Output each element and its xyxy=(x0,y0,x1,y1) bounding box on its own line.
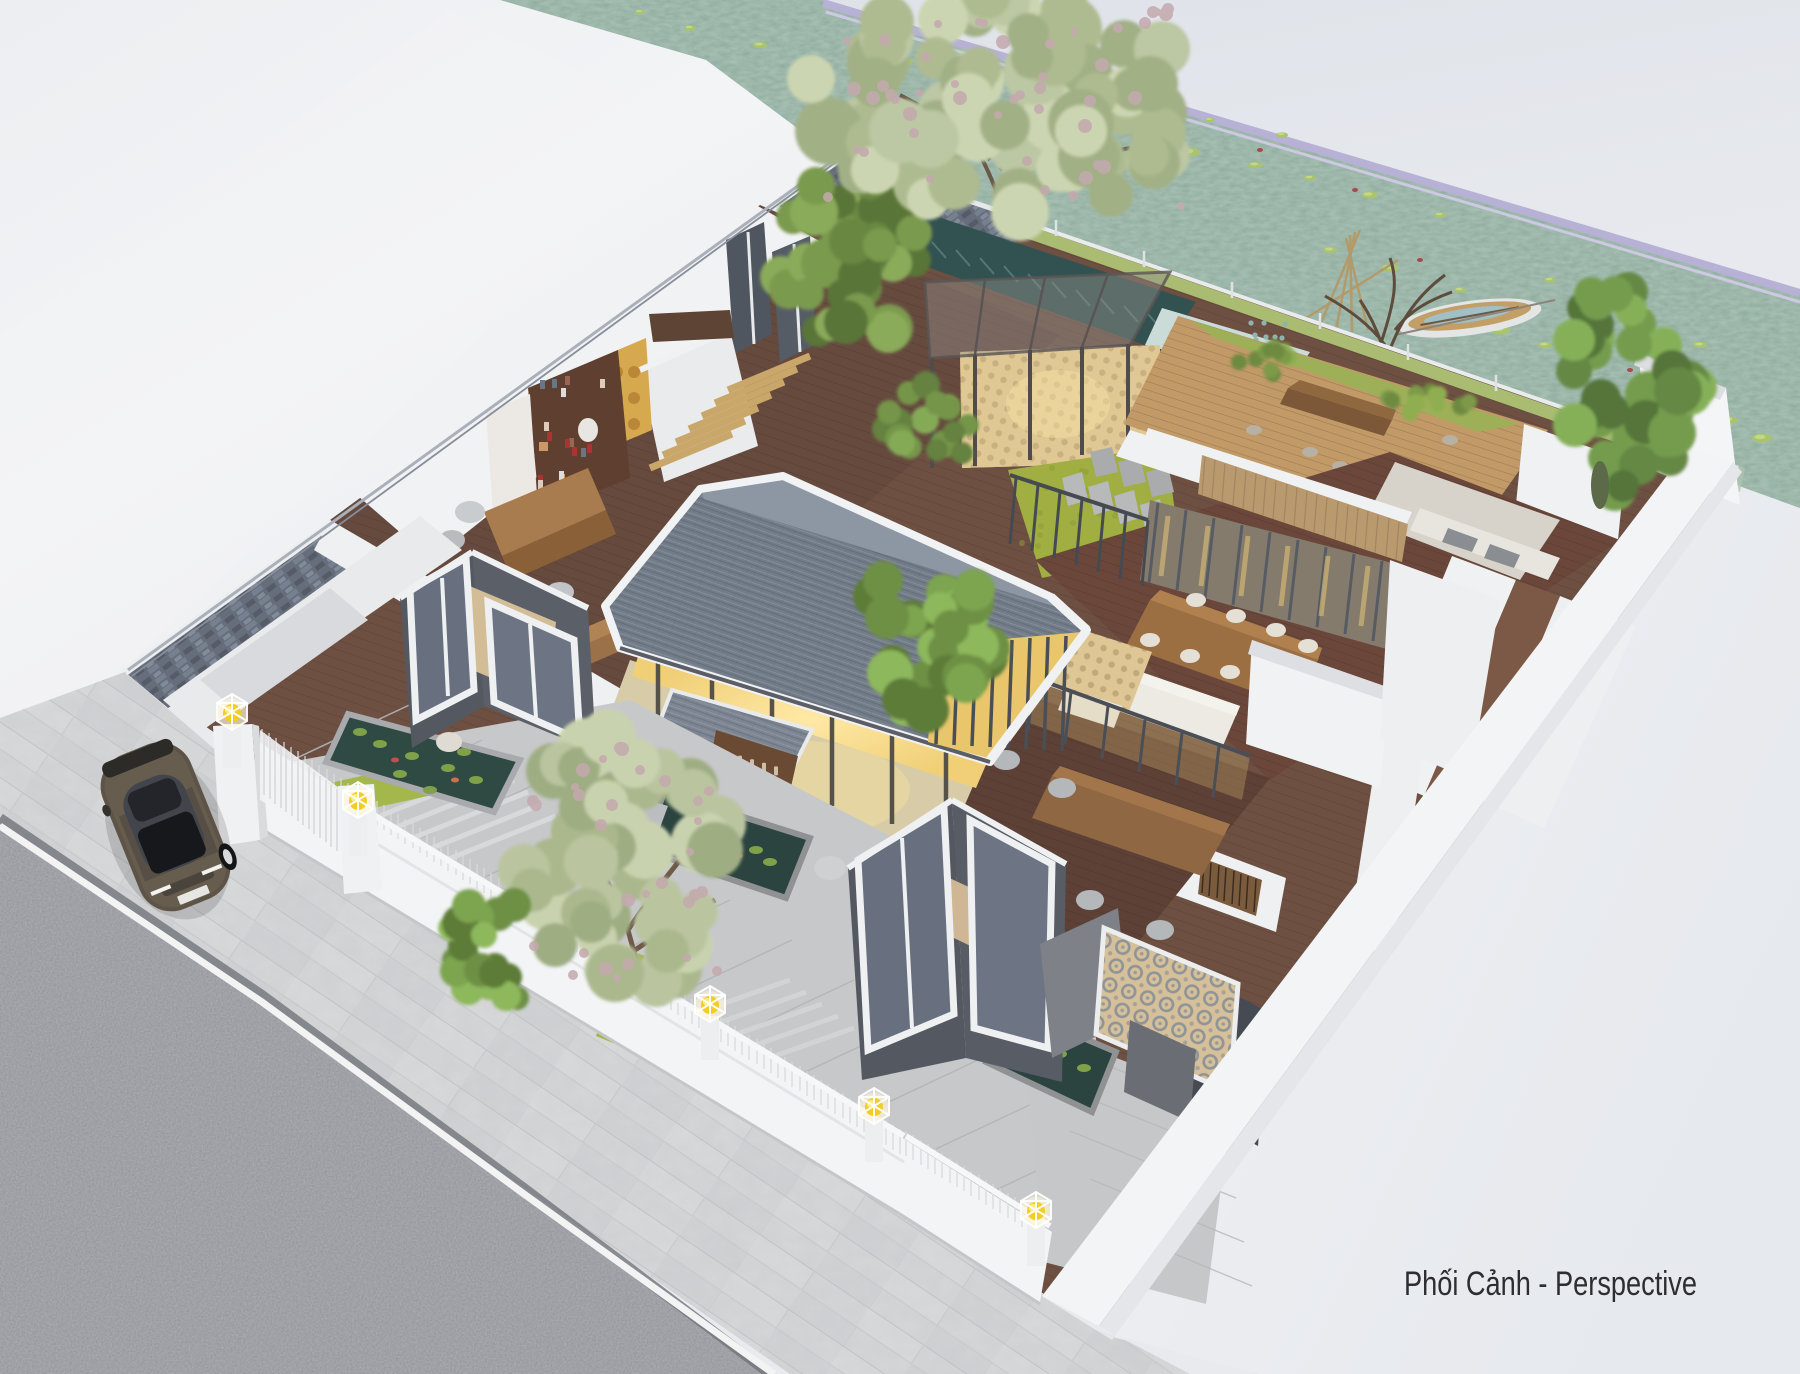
svg-text:Phối Cảnh - Perspective: Phối Cảnh - Perspective xyxy=(1404,1265,1697,1303)
